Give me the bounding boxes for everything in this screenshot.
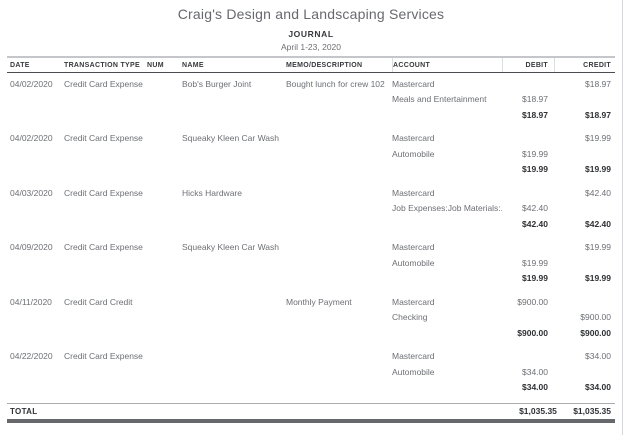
journal-row-account-line: Automobile $34.00 bbox=[7, 364, 615, 380]
cell-account: Automobile bbox=[392, 149, 502, 159]
total-label: TOTAL bbox=[7, 407, 425, 416]
subtotal-credit: $34.00 bbox=[554, 382, 615, 392]
cell-debit: $19.99 bbox=[502, 258, 554, 268]
transaction-group: 04/11/2020 Credit Card Credit Monthly Pa… bbox=[7, 294, 615, 341]
transaction-group: 04/09/2020 Credit Card Expense Squeaky K… bbox=[7, 240, 615, 287]
cell-account: Mastercard bbox=[392, 79, 502, 89]
journal-row: 04/22/2020 Credit Card Expense Mastercar… bbox=[7, 349, 615, 365]
transaction-group: 04/02/2020 Credit Card Expense Squeaky K… bbox=[7, 131, 615, 178]
cell-account: Mastercard bbox=[392, 297, 502, 307]
cell-date: 04/02/2020 bbox=[7, 79, 64, 89]
cell-account: Checking bbox=[392, 312, 502, 322]
cell-date: 04/02/2020 bbox=[7, 133, 64, 143]
journal-subtotal-row: $42.40 $42.40 bbox=[7, 216, 615, 232]
journal-row-account-line: Meals and Entertainment $18.97 bbox=[7, 92, 615, 108]
cell-credit: $42.40 bbox=[554, 188, 615, 198]
subtotal-credit: $19.99 bbox=[554, 164, 615, 174]
cell-transaction-type: Credit Card Expense bbox=[64, 351, 147, 361]
col-header-debit: DEBIT bbox=[502, 58, 554, 72]
col-header-date: DATE bbox=[7, 58, 64, 72]
subtotal-debit: $19.99 bbox=[502, 273, 554, 283]
cell-date: 04/09/2020 bbox=[7, 242, 64, 252]
cell-account: Automobile bbox=[392, 367, 502, 377]
subtotal-debit: $42.40 bbox=[502, 219, 554, 229]
cell-credit: $19.99 bbox=[554, 133, 615, 143]
journal-row-account-line: Automobile $19.99 bbox=[7, 255, 615, 271]
total-debit: $1,035.35 bbox=[518, 406, 563, 416]
transaction-group: 04/03/2020 Credit Card Expense Hicks Har… bbox=[7, 185, 615, 232]
journal-subtotal-row: $19.99 $19.99 bbox=[7, 271, 615, 287]
cell-name: Bob's Burger Joint bbox=[182, 79, 286, 89]
cell-account: Job Expenses:Job Materials:... bbox=[392, 203, 502, 213]
journal-row-account-line: Checking $900.00 bbox=[7, 310, 615, 326]
cell-date: 04/22/2020 bbox=[7, 351, 64, 361]
cell-transaction-type: Credit Card Expense bbox=[64, 242, 147, 252]
journal-table: DATE TRANSACTION TYPE NUM NAME MEMO/DESC… bbox=[7, 56, 615, 395]
subtotal-credit: $900.00 bbox=[554, 328, 615, 338]
journal-subtotal-row: $900.00 $900.00 bbox=[7, 325, 615, 341]
journal-subtotal-row: $19.99 $19.99 bbox=[7, 162, 615, 178]
cell-date: 04/03/2020 bbox=[7, 188, 64, 198]
cell-account: Mastercard bbox=[392, 133, 502, 143]
cell-account: Mastercard bbox=[392, 242, 502, 252]
cell-account: Mastercard bbox=[392, 351, 502, 361]
subtotal-credit: $42.40 bbox=[554, 219, 615, 229]
company-name: Craig's Design and Landscaping Services bbox=[0, 6, 622, 22]
table-header-row: DATE TRANSACTION TYPE NUM NAME MEMO/DESC… bbox=[7, 56, 615, 73]
cell-memo: Bought lunch for crew 102 bbox=[286, 79, 392, 89]
subtotal-debit: $34.00 bbox=[502, 382, 554, 392]
cell-date: 04/11/2020 bbox=[7, 297, 64, 307]
journal-row: 04/02/2020 Credit Card Expense Squeaky K… bbox=[7, 131, 615, 147]
report-date-range: April 1-23, 2020 bbox=[0, 42, 622, 52]
cell-account: Meals and Entertainment bbox=[392, 94, 502, 104]
cell-credit: $900.00 bbox=[554, 312, 615, 322]
subtotal-debit: $900.00 bbox=[502, 328, 554, 338]
table-body: 04/02/2020 Credit Card Expense Bob's Bur… bbox=[7, 73, 615, 395]
cell-credit: $18.97 bbox=[554, 79, 615, 89]
cell-credit: $34.00 bbox=[554, 351, 615, 361]
col-header-memo: MEMO/DESCRIPTION bbox=[286, 58, 392, 72]
subtotal-debit: $18.97 bbox=[502, 110, 554, 120]
total-credit: $1,035.35 bbox=[563, 406, 615, 416]
journal-row-account-line: Automobile $19.99 bbox=[7, 146, 615, 162]
cell-transaction-type: Credit Card Credit bbox=[64, 297, 147, 307]
journal-row: 04/09/2020 Credit Card Expense Squeaky K… bbox=[7, 240, 615, 256]
cell-transaction-type: Credit Card Expense bbox=[64, 79, 147, 89]
journal-row: 04/11/2020 Credit Card Credit Monthly Pa… bbox=[7, 294, 615, 310]
cell-name: Squeaky Kleen Car Wash bbox=[182, 242, 286, 252]
cell-name: Hicks Hardware bbox=[182, 188, 286, 198]
cell-debit: $19.99 bbox=[502, 149, 554, 159]
journal-subtotal-row: $34.00 $34.00 bbox=[7, 380, 615, 396]
transaction-group: 04/02/2020 Credit Card Expense Bob's Bur… bbox=[7, 76, 615, 123]
col-header-account: ACCOUNT bbox=[392, 58, 502, 72]
journal-row-account-line: Job Expenses:Job Materials:... $42.40 bbox=[7, 201, 615, 217]
cell-account: Automobile bbox=[392, 258, 502, 268]
subtotal-credit: $19.99 bbox=[554, 273, 615, 283]
cell-debit: $18.97 bbox=[502, 94, 554, 104]
double-underline bbox=[7, 419, 615, 423]
report-title: JOURNAL bbox=[0, 29, 622, 39]
cell-transaction-type: Credit Card Expense bbox=[64, 188, 147, 198]
cell-memo: Monthly Payment bbox=[286, 297, 392, 307]
col-header-name: NAME bbox=[182, 58, 286, 72]
journal-subtotal-row: $18.97 $18.97 bbox=[7, 107, 615, 123]
journal-row: 04/03/2020 Credit Card Expense Hicks Har… bbox=[7, 185, 615, 201]
subtotal-credit: $18.97 bbox=[554, 110, 615, 120]
report-viewport: Craig's Design and Landscaping Services … bbox=[0, 0, 623, 435]
report-header: Craig's Design and Landscaping Services … bbox=[0, 0, 622, 52]
total-row: TOTAL $1,035.35 $1,035.35 bbox=[7, 403, 615, 418]
col-header-num: NUM bbox=[147, 58, 182, 72]
subtotal-debit: $19.99 bbox=[502, 164, 554, 174]
total-section: TOTAL $1,035.35 $1,035.35 bbox=[7, 403, 615, 423]
cell-debit: $42.40 bbox=[502, 203, 554, 213]
cell-debit: $900.00 bbox=[502, 297, 554, 307]
journal-row: 04/02/2020 Credit Card Expense Bob's Bur… bbox=[7, 76, 615, 92]
cell-account: Mastercard bbox=[392, 188, 502, 198]
cell-debit: $34.00 bbox=[502, 367, 554, 377]
col-header-type: TRANSACTION TYPE bbox=[64, 58, 147, 72]
col-header-credit: CREDIT bbox=[554, 58, 615, 72]
cell-name: Squeaky Kleen Car Wash bbox=[182, 133, 286, 143]
transaction-group: 04/22/2020 Credit Card Expense Mastercar… bbox=[7, 349, 615, 396]
cell-transaction-type: Credit Card Expense bbox=[64, 133, 147, 143]
cell-credit: $19.99 bbox=[554, 242, 615, 252]
